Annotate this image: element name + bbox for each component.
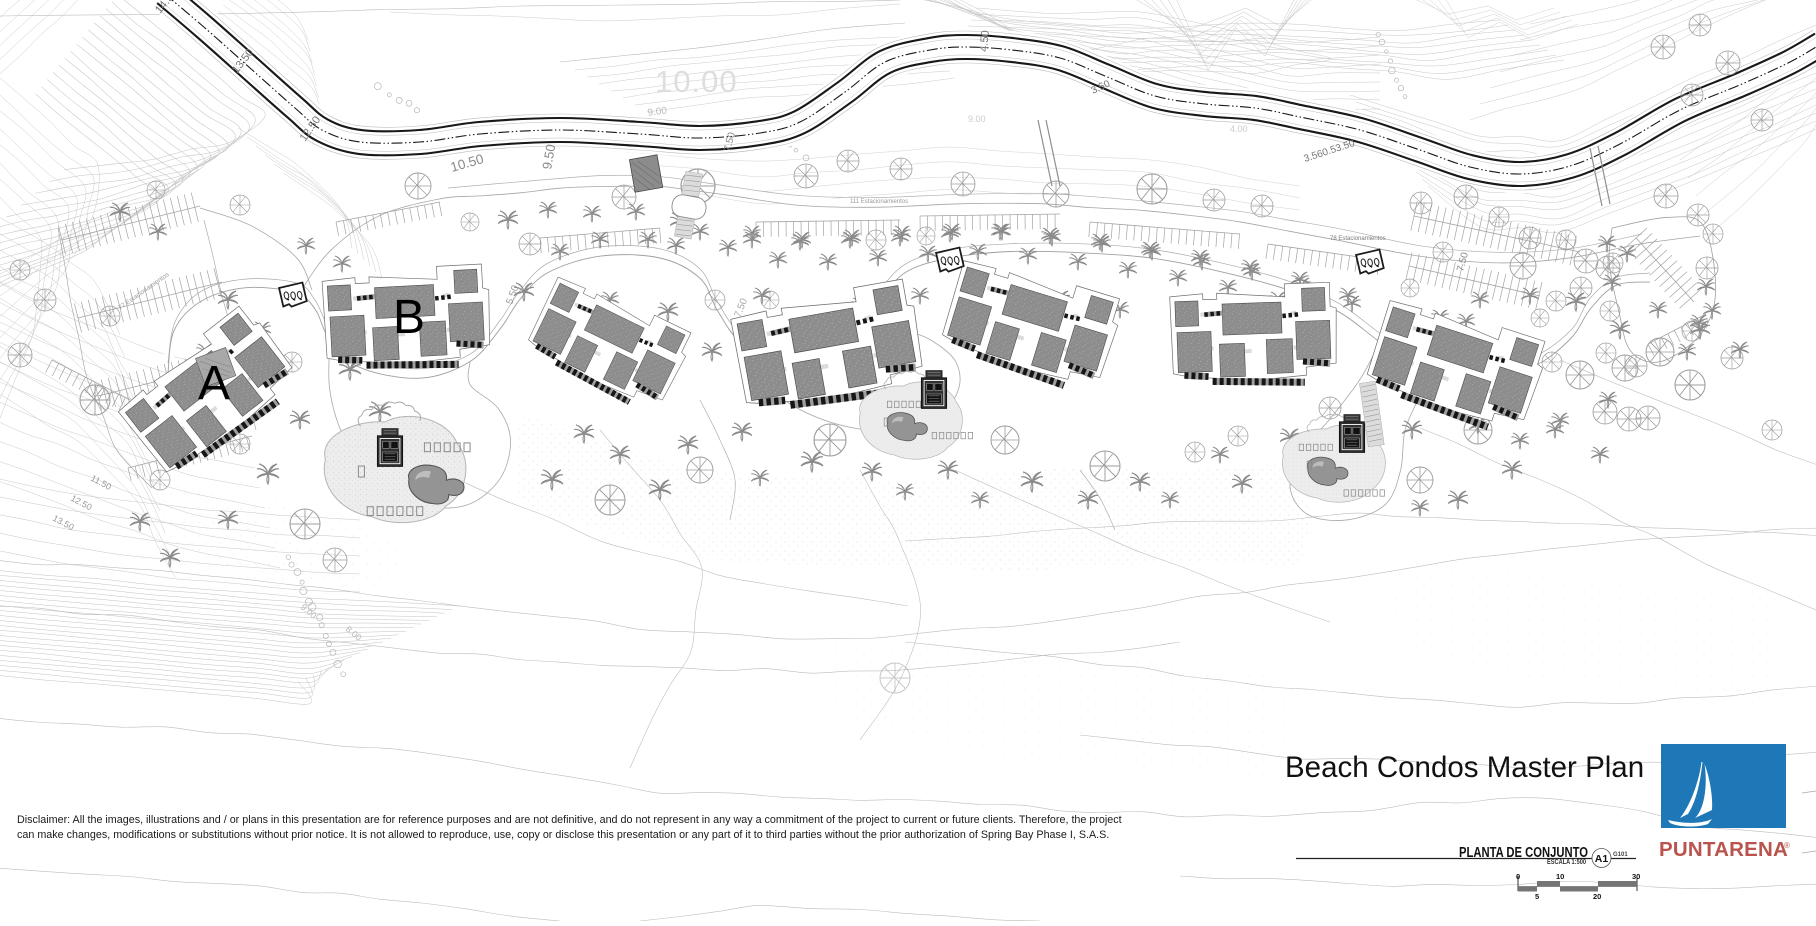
svg-text:®: ® [1784,841,1790,850]
svg-text:111 Estacionamientos: 111 Estacionamientos [850,199,908,205]
svg-text:A1: A1 [1595,853,1609,865]
svg-text:0: 0 [1516,872,1520,881]
svg-text:5: 5 [1535,892,1539,901]
svg-text:4.00: 4.00 [1230,124,1248,134]
svg-text:10.00: 10.00 [655,64,738,99]
svg-text:9.00: 9.00 [968,114,986,124]
svg-text:4.50: 4.50 [978,30,992,52]
svg-text:20: 20 [1593,892,1601,901]
svg-text:B: B [393,291,425,344]
svg-text:ESCALA 1:500: ESCALA 1:500 [1547,859,1586,866]
svg-text:Beach Condos Master Plan: Beach Condos Master Plan [1285,751,1644,784]
svg-text:PUNTARENA: PUNTARENA [1659,838,1788,861]
svg-text:78 Estacionamientos: 78 Estacionamientos [1330,236,1386,242]
svg-text:G101: G101 [1613,852,1628,858]
svg-text:30: 30 [1632,872,1640,881]
svg-text:Disclaimer: All the images, i: Disclaimer: All the images, illustration… [17,814,1122,826]
svg-text:A: A [198,357,230,410]
svg-text:can make changes, modification: can make changes, modifications or subst… [17,829,1109,841]
svg-text:10: 10 [1556,872,1564,881]
